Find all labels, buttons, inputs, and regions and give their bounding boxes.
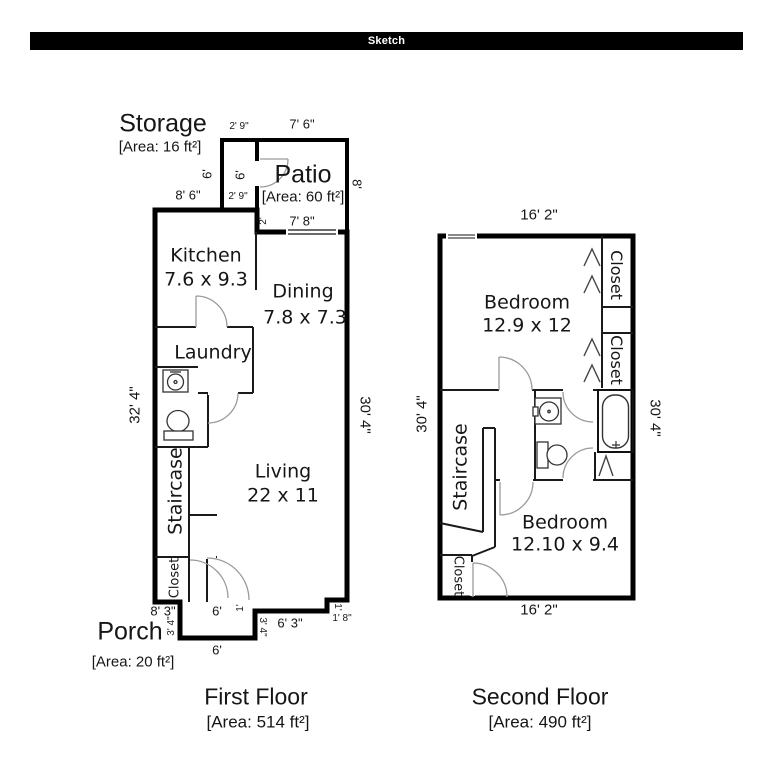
patio-window [286,228,338,236]
patio-area-label: [Area: 60 ft²] [262,190,345,205]
first-floor-plan [155,140,347,638]
toilet-icon [164,411,193,441]
dim-top: 16' 2" [520,208,557,223]
bifold-icon [599,456,613,476]
laundry-label: Laundry [174,344,251,363]
bedroom1-size-label: 12.9 x 12 [482,317,572,336]
staircase-label: Staircase [167,447,186,535]
dim-left-side: 32' 4" [128,386,143,423]
first-floor-area-label: [Area: 514 ft²] [207,714,310,731]
dim-porch-right: 3' 4" [257,617,267,636]
bedroom2-label: Bedroom [522,514,608,533]
closet2-door-arc [473,563,507,597]
dining-size-label: 7.8 x 7.3 [263,309,347,328]
dim-notch-bottom: 1' 8" [332,614,351,624]
dim-right-side: 30' 4" [358,396,373,433]
fixtures-floor2 [533,398,567,468]
second-floor-title: Second Floor [472,686,609,709]
dim-kitchen-top: 8' 6" [175,189,200,202]
laundry-door-arc [208,393,238,423]
washer-icon [163,370,188,392]
dim-porch-top: 6' [212,605,222,618]
sink-icon [533,398,561,424]
bathtub-icon [598,390,633,452]
closet-door-arc [190,560,228,598]
bedroom2-size-label: 12.10 x 9.4 [511,536,619,555]
living-label: Living [255,463,312,482]
kitchen-door-arc [196,296,227,327]
bifold-icon [584,339,600,356]
storage-area-label: [Area: 16 ft²] [119,140,202,155]
bedroom1-label: Bedroom [484,294,570,313]
dim-patio-bottom: 7' 8" [289,215,314,228]
second-floor-area-label: [Area: 490 ft²] [489,714,592,731]
patio-label: Patio [275,163,332,188]
dim-left-side: 30' 4" [415,395,430,432]
porch-label: Porch [97,620,162,645]
dim-storage-bottom: 2' 9" [228,192,247,202]
dim-right-side: 30' 4" [648,399,663,436]
closet-label: Closet [169,558,182,599]
first-floor-title: First Floor [204,686,308,709]
kitchen-label: Kitchen [170,247,241,266]
dim-storage-left: 6' [201,169,214,179]
closet-top-label: Closet [608,250,624,300]
living-size-label: 22 x 11 [247,487,319,506]
dim-patio-top: 7' 6" [289,118,314,131]
dim-patio-bottom-left: 2' [259,217,269,224]
dim-porch-top-right: 1' [236,604,246,611]
dim-porch-left: 3' 4" [167,616,177,635]
dim-porch-bottom: 6' [212,644,222,657]
porch-area-label: [Area: 20 ft²] [92,655,175,670]
dim-notch-step: 1' [332,603,342,610]
bifold-icon [584,276,600,293]
staircase-label: Staircase [452,423,471,511]
bifold-icon [584,365,600,382]
dim-storage-inner: 6' [234,170,247,180]
dining-label: Dining [272,283,333,302]
dim-patio-right: 8' [351,179,364,189]
bedroom2-door-arc [500,482,533,515]
toilet-icon [537,442,567,468]
closet-bottom-label: Closet [452,556,465,597]
closet-mid-label: Closet [608,335,624,385]
bifold-icon [584,249,600,266]
dim-storage-top: 2' 9" [229,122,248,132]
storage-label: Storage [119,112,207,137]
fixtures-floor1 [163,370,193,440]
dim-bottom-mid: 6' 3" [277,617,302,630]
door-arcs [190,159,288,600]
bath-door-top-arc [563,392,593,422]
bedroom1-door-arc [499,357,532,390]
kitchen-size-label: 7.6 x 9.3 [164,271,248,290]
bath-door-bottom-arc [563,448,593,478]
bedroom-window [446,233,477,240]
sketch-page: Sketch [0,0,772,780]
dim-bottom: 16' 2" [520,603,557,618]
